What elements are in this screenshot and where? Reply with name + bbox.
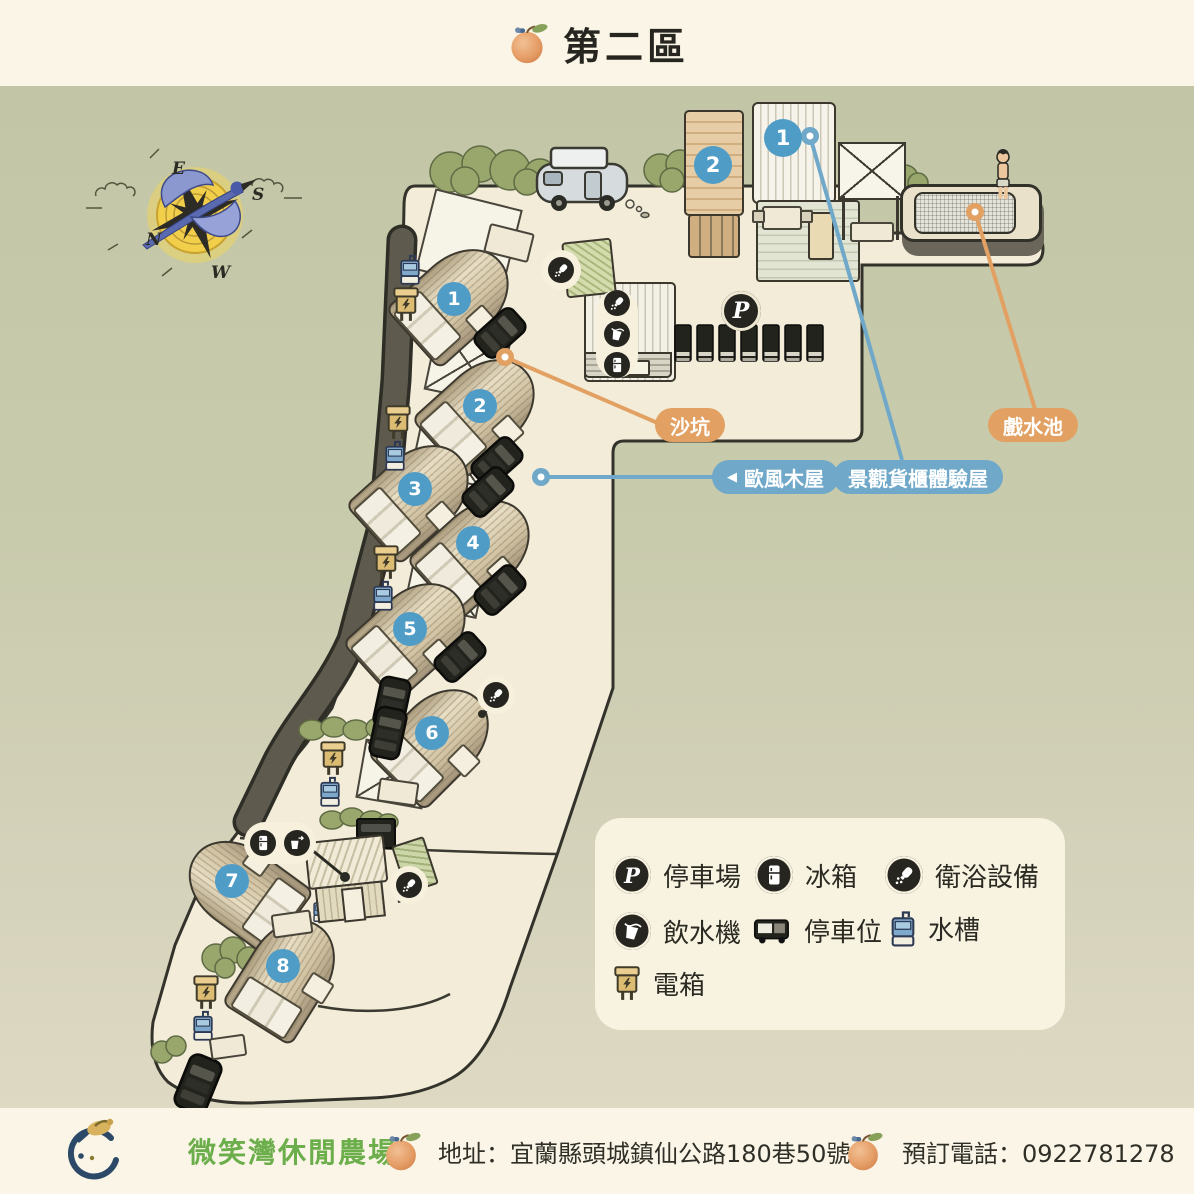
legend-item-sink: 水槽 bbox=[890, 908, 980, 948]
zone2-map-poster: E S W N bbox=[0, 0, 1194, 1194]
fridge-icon bbox=[250, 830, 276, 856]
label-pool: 戲水池 bbox=[988, 408, 1078, 442]
label-container-house-text: 景觀貨櫃體驗屋 bbox=[848, 463, 988, 492]
legend-label: 水槽 bbox=[928, 910, 980, 947]
cabin-4-badge: 4 bbox=[456, 526, 490, 560]
legend-item-water-dispenser: 飲水機 bbox=[613, 912, 741, 950]
cabin-7-badge: 7 bbox=[215, 864, 249, 898]
legend-item-bath: 衛浴設備 bbox=[885, 856, 1039, 894]
water-refill-icon bbox=[284, 830, 310, 856]
orange-icon bbox=[380, 1130, 422, 1172]
label-euro-cabin-text: 歐風木屋 bbox=[744, 463, 824, 492]
legend-label: 停車場 bbox=[663, 857, 741, 894]
bath-icon bbox=[885, 856, 923, 894]
legend-label: 電箱 bbox=[653, 965, 705, 1002]
page-title: 第二區 bbox=[563, 16, 689, 71]
electric-box-icon bbox=[613, 964, 641, 1002]
label-euro-cabin: ◀ 歐風木屋 bbox=[712, 460, 839, 494]
label-container-house: 景觀貨櫃體驗屋 bbox=[833, 460, 1003, 494]
container-marker-2: 2 bbox=[694, 146, 732, 184]
legend-label: 停車位 bbox=[804, 912, 882, 949]
legend-item-parking: P 停車場 bbox=[613, 856, 741, 894]
facility-callout-bubble bbox=[244, 822, 316, 864]
legend-label: 飲水機 bbox=[663, 913, 741, 950]
parking-icon: P bbox=[613, 856, 651, 894]
sink-icon bbox=[890, 908, 916, 948]
legend-item-fridge: 冰箱 bbox=[755, 856, 857, 894]
bath-bubble bbox=[541, 250, 581, 290]
cabin-8-badge: 8 bbox=[266, 949, 300, 983]
label-pool-text: 戲水池 bbox=[1003, 411, 1063, 440]
legend-item-parking-spot: 停車位 bbox=[752, 912, 882, 949]
legend-label: 冰箱 bbox=[805, 857, 857, 894]
label-sandpit-text: 沙坑 bbox=[670, 411, 710, 440]
left-arrow-icon: ◀ bbox=[727, 470, 737, 485]
legend-panel: P 停車場 冰箱 衛浴設備 飲水機 停車位 水槽 電箱 bbox=[595, 818, 1065, 1030]
bath-icon bbox=[548, 257, 574, 283]
bath-bubble bbox=[390, 866, 428, 904]
water-dispenser-icon bbox=[613, 912, 651, 950]
cabin-5-badge: 5 bbox=[393, 612, 427, 646]
bath-icon bbox=[483, 682, 509, 708]
cabin-2-badge: 2 bbox=[463, 389, 497, 423]
cabin-3-badge: 3 bbox=[398, 472, 432, 506]
fridge-icon bbox=[755, 856, 793, 894]
orange-icon bbox=[505, 21, 549, 65]
legend-item-electric-box: 電箱 bbox=[613, 964, 705, 1002]
container-marker-1: 1 bbox=[764, 119, 802, 157]
farm-logo bbox=[58, 1116, 124, 1188]
bath-icon bbox=[396, 872, 422, 898]
address-text: 地址：宜蘭縣頭城鎮仙公路180巷50號 bbox=[438, 1108, 850, 1194]
parking-spot-icon bbox=[752, 917, 792, 945]
farm-name: 微笑灣休閒農場 bbox=[188, 1108, 398, 1194]
orange-icon bbox=[842, 1130, 884, 1172]
header: 第二區 bbox=[0, 0, 1194, 86]
footer: 微笑灣休閒農場 地址：宜蘭縣頭城鎮仙公路180巷50號 預訂電話：0922781… bbox=[0, 1108, 1194, 1194]
parking-lot-badge: P bbox=[721, 291, 761, 331]
cabin-1-badge: 1 bbox=[437, 282, 471, 316]
bath-bubble bbox=[477, 676, 515, 714]
phone-text: 預訂電話：0922781278 bbox=[902, 1108, 1175, 1194]
label-sandpit: 沙坑 bbox=[655, 408, 725, 442]
cabin-6-badge: 6 bbox=[415, 716, 449, 750]
legend-label: 衛浴設備 bbox=[935, 857, 1039, 894]
